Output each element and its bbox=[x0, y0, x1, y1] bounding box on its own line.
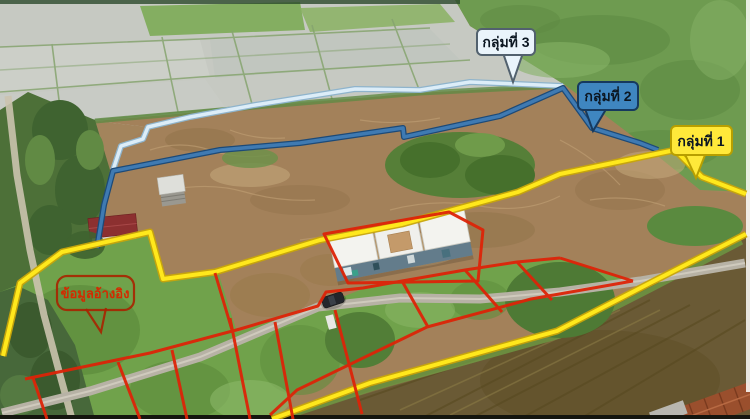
group1-label: กลุ่มที่ 1 bbox=[677, 131, 724, 150]
white-shed bbox=[157, 174, 187, 206]
photo-edge-top bbox=[0, 0, 460, 4]
group2-label: กลุ่มที่ 2 bbox=[584, 86, 631, 105]
group3-label: กลุ่มที่ 3 bbox=[482, 32, 529, 51]
photo-edge-right bbox=[746, 0, 750, 392]
annotated-aerial-photo: ข้อมูลอ้างอิง กลุ่มที่ 3 กลุ่มที่ 2 กลุ่… bbox=[0, 0, 750, 419]
reference-label: ข้อมูลอ้างอิง bbox=[61, 286, 130, 302]
photo-edge-bottom bbox=[0, 415, 750, 419]
aerial-photo-canvas: ข้อมูลอ้างอิง กลุ่มที่ 3 กลุ่มที่ 2 กลุ่… bbox=[0, 0, 750, 419]
